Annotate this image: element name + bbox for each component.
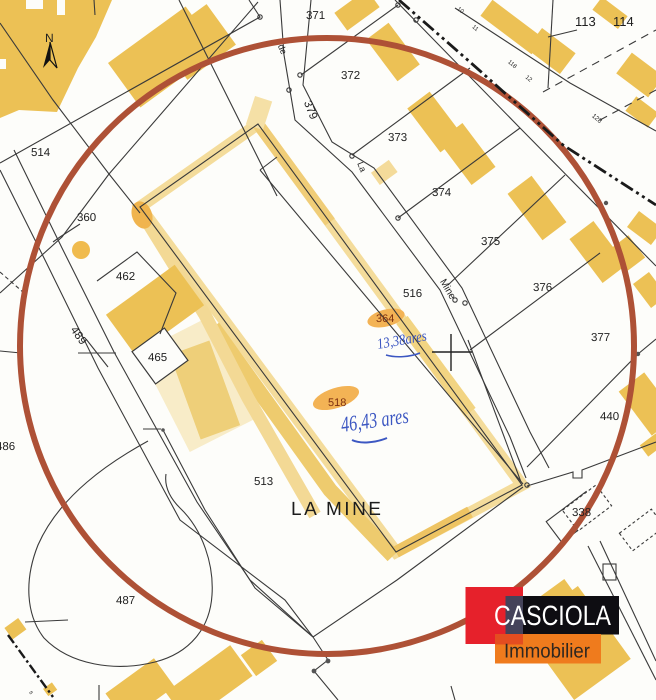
svg-text:377: 377 [591, 332, 610, 344]
svg-text:371: 371 [306, 10, 325, 22]
svg-text:462: 462 [116, 271, 135, 283]
svg-text:364: 364 [376, 313, 394, 325]
svg-text:N: N [45, 31, 54, 45]
svg-text:516: 516 [403, 288, 422, 300]
svg-text:518: 518 [328, 397, 346, 409]
svg-text:114: 114 [613, 14, 634, 29]
svg-text:465: 465 [148, 352, 167, 364]
svg-text:LA MINE: LA MINE [291, 499, 383, 520]
svg-text:440: 440 [600, 411, 619, 423]
svg-text:Immobilier: Immobilier [504, 641, 590, 663]
svg-text:487: 487 [116, 595, 135, 607]
svg-text:CASCIOLA: CASCIOLA [494, 600, 611, 631]
svg-text:375: 375 [481, 236, 500, 248]
svg-text:373: 373 [388, 132, 407, 144]
svg-text:360: 360 [77, 212, 96, 224]
svg-text:374: 374 [432, 187, 452, 199]
svg-text:486: 486 [0, 441, 15, 453]
svg-text:514: 514 [31, 147, 51, 159]
svg-text:376: 376 [533, 282, 552, 294]
svg-text:513: 513 [254, 476, 273, 488]
svg-text:113: 113 [575, 14, 596, 29]
svg-text:372: 372 [341, 70, 360, 82]
svg-text:338: 338 [572, 507, 591, 519]
